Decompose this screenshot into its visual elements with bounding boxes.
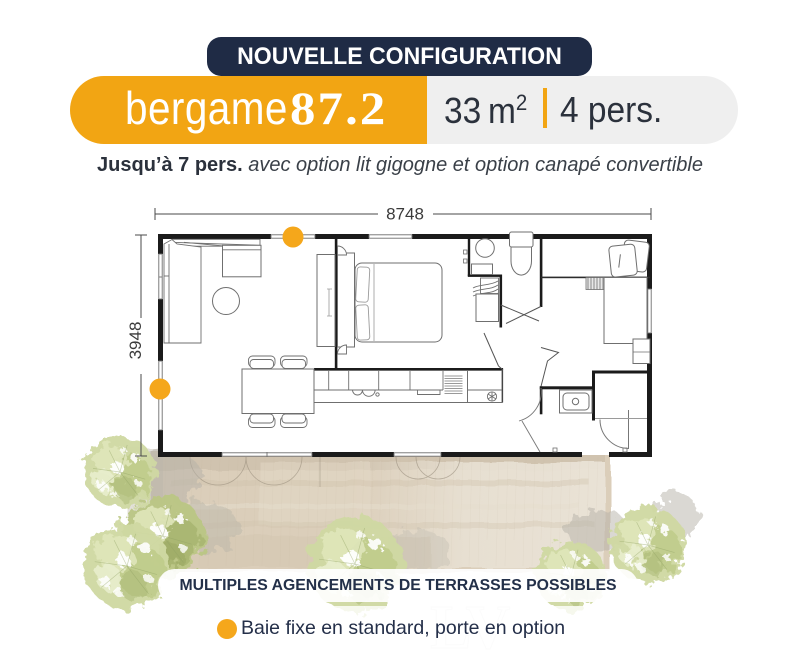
svg-text:3948: 3948 [126, 322, 145, 360]
svg-text:8748: 8748 [386, 205, 424, 224]
